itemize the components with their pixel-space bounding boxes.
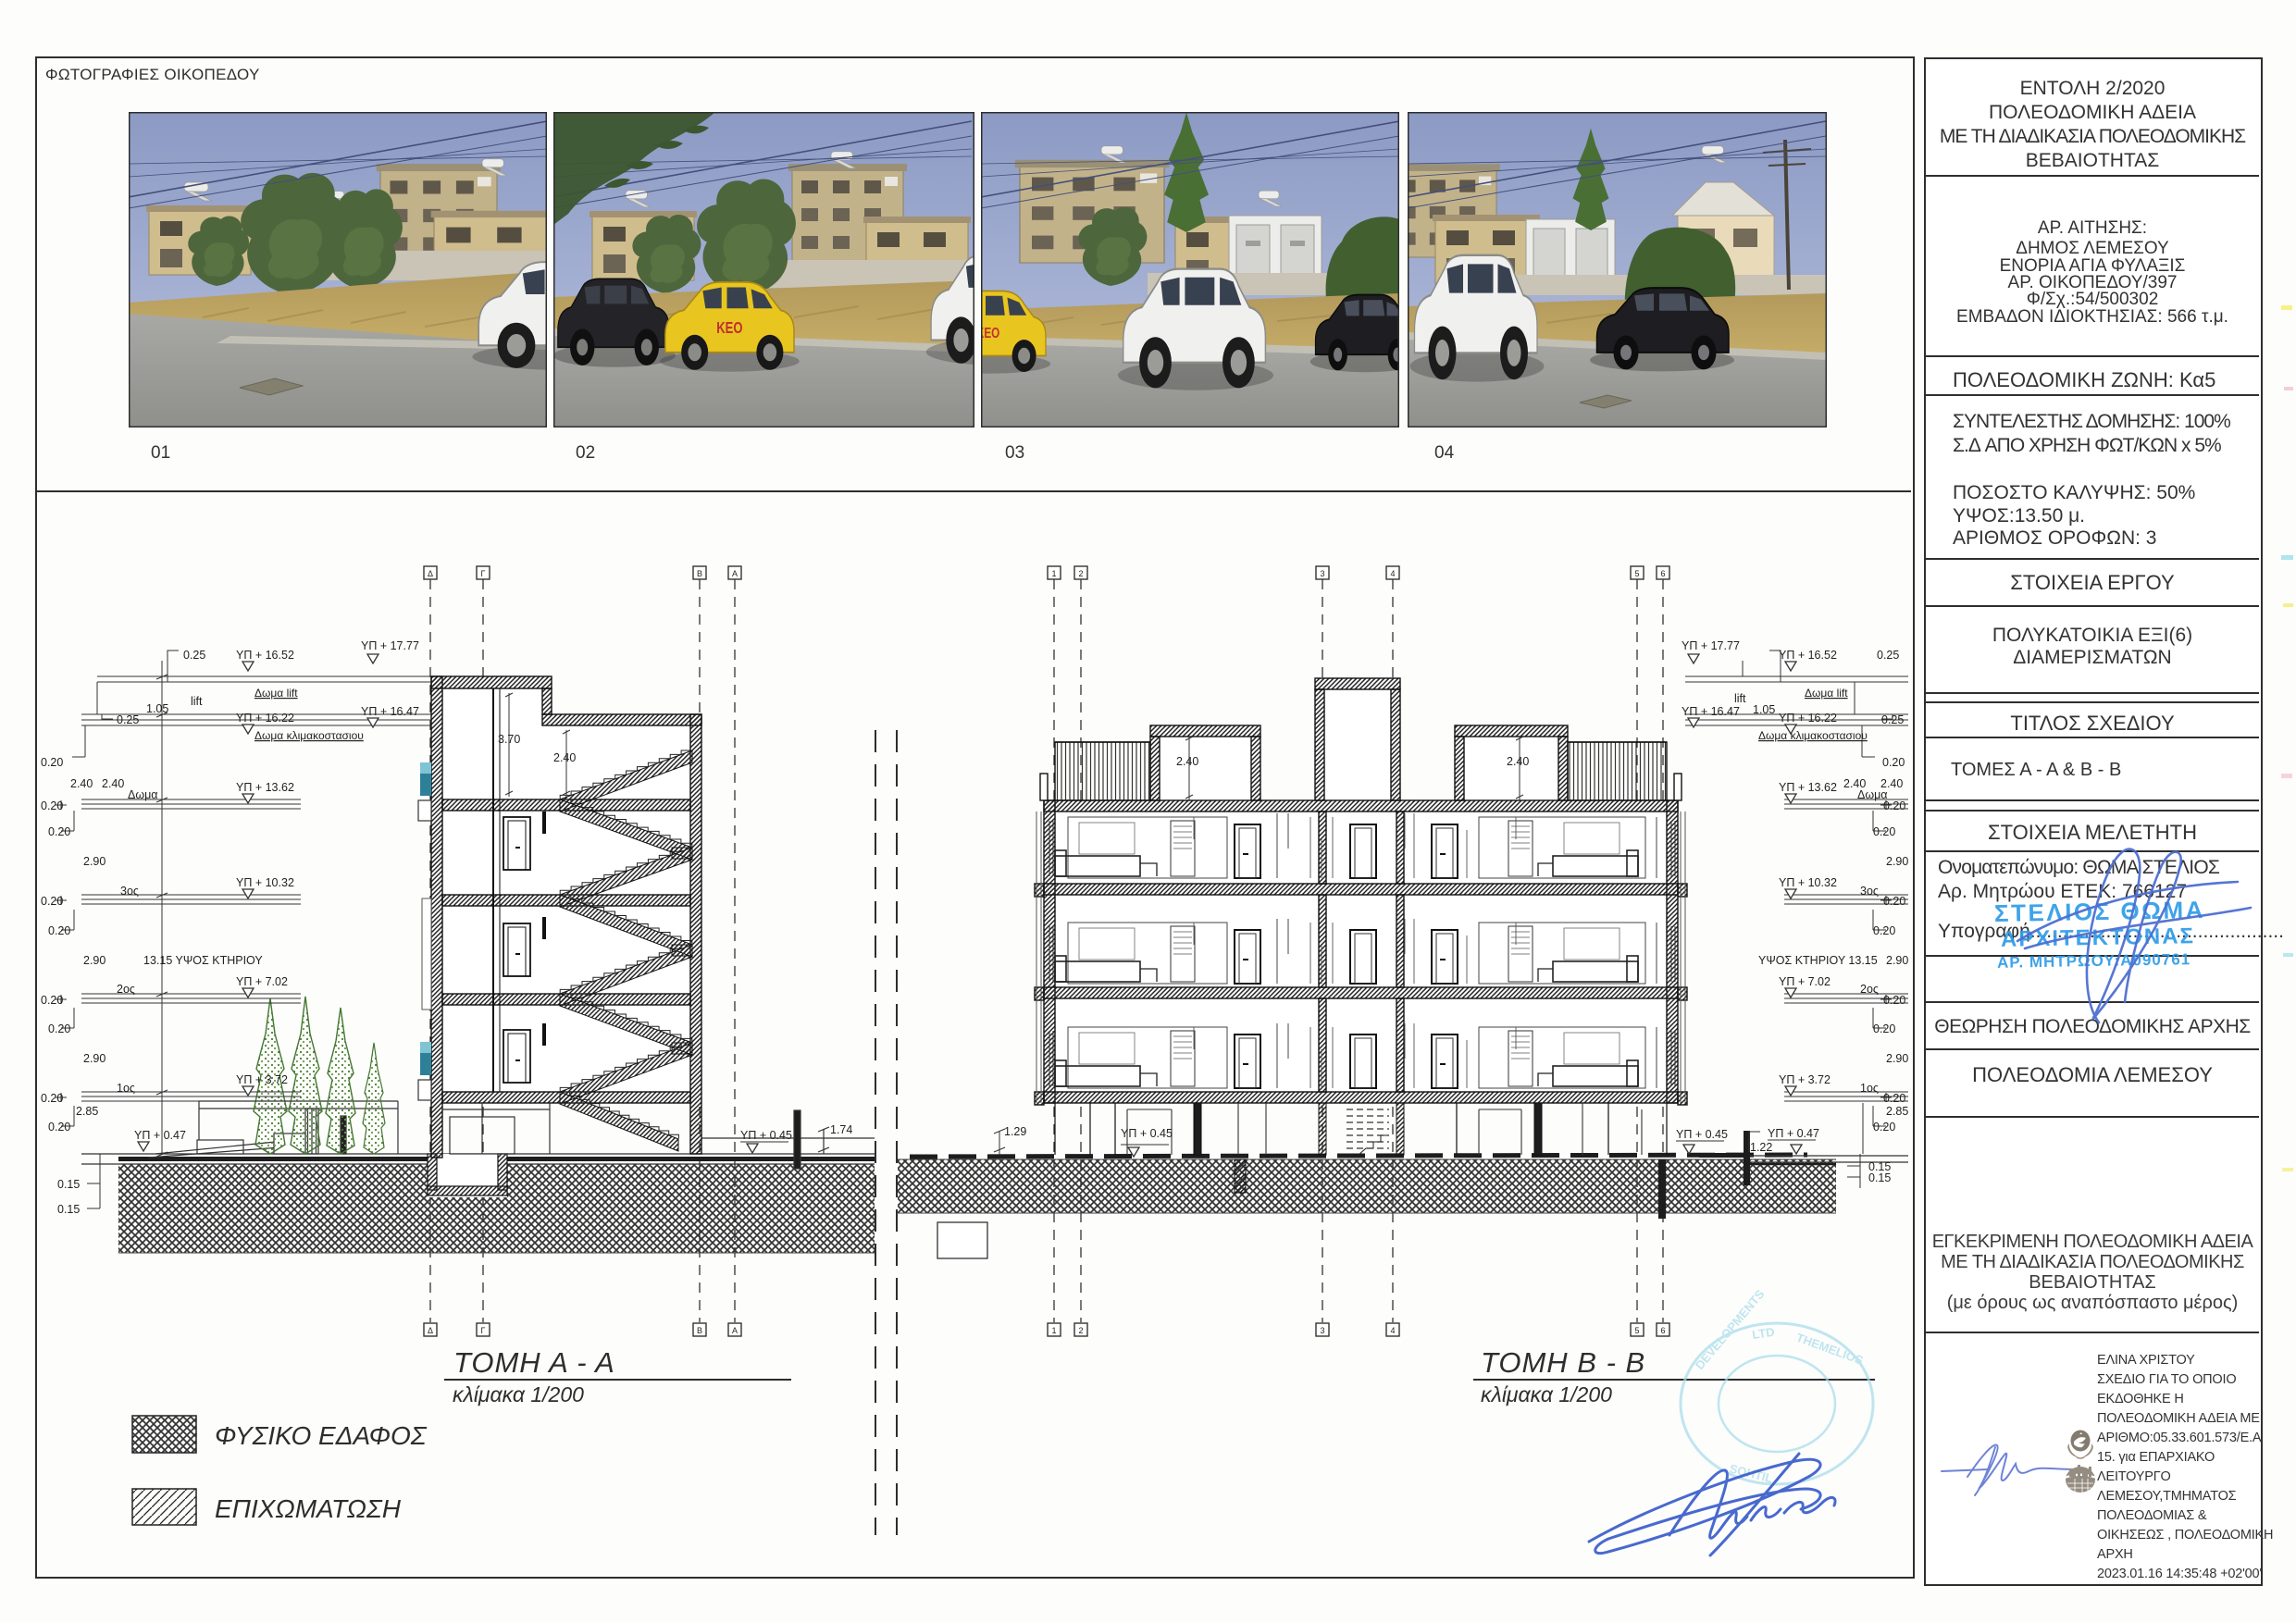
svg-text:ΥΠ + 0.45: ΥΠ + 0.45 bbox=[1121, 1127, 1173, 1140]
svg-text:κλίμακα 1/200: κλίμακα 1/200 bbox=[453, 1382, 584, 1406]
svg-text:ΕΠΙΧΩΜΑΤΩΣΗ: ΕΠΙΧΩΜΑΤΩΣΗ bbox=[215, 1494, 402, 1523]
svg-text:Δωμα: Δωμα bbox=[128, 788, 158, 801]
svg-text:0.20: 0.20 bbox=[1873, 1121, 1895, 1134]
svg-text:2: 2 bbox=[1078, 569, 1083, 578]
svg-text:2.40: 2.40 bbox=[1176, 755, 1198, 768]
svg-text:1.29: 1.29 bbox=[1004, 1125, 1026, 1138]
svg-text:2.90: 2.90 bbox=[83, 954, 105, 967]
svg-text:6: 6 bbox=[1660, 569, 1665, 578]
svg-text:5: 5 bbox=[1634, 569, 1639, 578]
svg-text:ΥΠ + 0.45: ΥΠ + 0.45 bbox=[1676, 1128, 1728, 1141]
svg-text:ΥΨΟΣ ΚΤΗΡΙΟΥ 13.15: ΥΨΟΣ ΚΤΗΡΙΟΥ 13.15 bbox=[1758, 954, 1878, 967]
svg-text:2ος: 2ος bbox=[1860, 983, 1879, 996]
svg-text:2.90: 2.90 bbox=[83, 1052, 105, 1065]
svg-text:Γ: Γ bbox=[481, 1326, 486, 1335]
svg-text:1: 1 bbox=[1051, 1326, 1056, 1335]
svg-text:Α: Α bbox=[732, 1326, 738, 1335]
svg-text:ΥΠ + 13.62: ΥΠ + 13.62 bbox=[236, 781, 294, 794]
svg-text:0.20: 0.20 bbox=[1883, 1092, 1905, 1105]
svg-text:ΥΠ + 16.52: ΥΠ + 16.52 bbox=[1779, 649, 1837, 662]
svg-text:ΥΠ + 0.47: ΥΠ + 0.47 bbox=[1768, 1127, 1819, 1140]
svg-text:2.40: 2.40 bbox=[553, 751, 576, 764]
svg-text:2.90: 2.90 bbox=[1886, 855, 1908, 868]
svg-text:3: 3 bbox=[1320, 1326, 1324, 1335]
svg-text:κλίμακα 1/200: κλίμακα 1/200 bbox=[1481, 1382, 1612, 1406]
svg-text:0.20: 0.20 bbox=[41, 799, 63, 812]
svg-text:3ος: 3ος bbox=[1860, 885, 1879, 898]
svg-text:2.90: 2.90 bbox=[1886, 954, 1908, 967]
svg-text:0.20: 0.20 bbox=[48, 825, 70, 838]
svg-text:ΥΠ + 17.77: ΥΠ + 17.77 bbox=[361, 639, 419, 652]
svg-text:3.70: 3.70 bbox=[498, 733, 520, 746]
svg-text:2.85: 2.85 bbox=[76, 1105, 98, 1118]
svg-text:ΤΟΜΗ Α - Α: ΤΟΜΗ Α - Α bbox=[453, 1346, 615, 1379]
svg-text:ΥΠ + 16.22: ΥΠ + 16.22 bbox=[1779, 712, 1837, 725]
svg-text:0.20: 0.20 bbox=[1873, 924, 1895, 937]
svg-text:Β: Β bbox=[697, 1326, 702, 1335]
svg-text:ΥΠ + 13.62: ΥΠ + 13.62 bbox=[1779, 781, 1837, 794]
svg-text:1.05: 1.05 bbox=[146, 702, 168, 715]
svg-text:ΥΠ + 16.47: ΥΠ + 16.47 bbox=[361, 705, 419, 718]
svg-text:Β: Β bbox=[697, 569, 702, 578]
svg-text:3ος: 3ος bbox=[120, 885, 139, 898]
svg-text:0.20: 0.20 bbox=[48, 924, 70, 937]
svg-text:ΥΠ + 0.45: ΥΠ + 0.45 bbox=[740, 1129, 792, 1142]
svg-text:ΥΠ + 7.02: ΥΠ + 7.02 bbox=[236, 975, 288, 988]
svg-text:0.20: 0.20 bbox=[41, 994, 63, 1007]
svg-text:2.40: 2.40 bbox=[1507, 755, 1529, 768]
svg-text:2.85: 2.85 bbox=[1886, 1105, 1908, 1118]
svg-text:0.15: 0.15 bbox=[57, 1178, 80, 1191]
svg-text:1ος: 1ος bbox=[117, 1082, 135, 1095]
svg-text:2.90: 2.90 bbox=[1886, 1052, 1908, 1065]
svg-text:ΤΟΜΗ Β - Β: ΤΟΜΗ Β - Β bbox=[1481, 1346, 1645, 1379]
svg-text:6: 6 bbox=[1660, 1326, 1665, 1335]
svg-text:13.15 ΥΨΟΣ ΚΤΗΡΙΟΥ: 13.15 ΥΨΟΣ ΚΤΗΡΙΟΥ bbox=[143, 954, 263, 967]
svg-text:0.20: 0.20 bbox=[41, 756, 63, 769]
svg-text:0.20: 0.20 bbox=[1883, 895, 1905, 908]
svg-text:1.74: 1.74 bbox=[830, 1123, 852, 1136]
svg-text:0.25: 0.25 bbox=[1877, 649, 1899, 662]
svg-text:lift: lift bbox=[1734, 692, 1746, 705]
svg-text:Α: Α bbox=[732, 569, 738, 578]
svg-text:1: 1 bbox=[1051, 569, 1056, 578]
svg-text:ΥΠ + 3.72: ΥΠ + 3.72 bbox=[236, 1073, 288, 1086]
svg-text:Δ: Δ bbox=[428, 569, 433, 578]
svg-text:0.20: 0.20 bbox=[1873, 825, 1895, 838]
svg-text:0.20: 0.20 bbox=[1883, 994, 1905, 1007]
svg-text:0.20: 0.20 bbox=[41, 895, 63, 908]
svg-text:3: 3 bbox=[1320, 569, 1324, 578]
svg-text:0.20: 0.20 bbox=[1873, 1022, 1895, 1035]
svg-text:Δωμα lift: Δωμα lift bbox=[254, 687, 298, 700]
svg-text:ΥΠ + 0.47: ΥΠ + 0.47 bbox=[134, 1129, 186, 1142]
svg-text:Δωμα κλιμακοστασιου: Δωμα κλιμακοστασιου bbox=[254, 729, 364, 742]
svg-text:0.25: 0.25 bbox=[1881, 713, 1904, 726]
svg-text:0.20: 0.20 bbox=[1883, 799, 1905, 812]
svg-text:4: 4 bbox=[1390, 1326, 1395, 1335]
svg-text:Δ: Δ bbox=[428, 1326, 433, 1335]
svg-text:2ος: 2ος bbox=[117, 983, 135, 996]
svg-text:2: 2 bbox=[1078, 1326, 1083, 1335]
svg-text:ΥΠ + 7.02: ΥΠ + 7.02 bbox=[1779, 975, 1831, 988]
svg-text:LTD: LTD bbox=[1751, 1325, 1775, 1342]
svg-text:ΦΥΣΙΚΟ ΕΔΑΦΟΣ: ΦΥΣΙΚΟ ΕΔΑΦΟΣ bbox=[215, 1421, 428, 1450]
svg-text:0.20: 0.20 bbox=[1882, 756, 1905, 769]
svg-text:2.40: 2.40 bbox=[102, 777, 124, 790]
svg-text:ΥΠ + 16.47: ΥΠ + 16.47 bbox=[1682, 705, 1740, 718]
svg-text:ΥΠ + 10.32: ΥΠ + 10.32 bbox=[236, 876, 294, 889]
svg-text:ΥΠ + 16.52: ΥΠ + 16.52 bbox=[236, 649, 294, 662]
svg-text:ΥΠ + 10.32: ΥΠ + 10.32 bbox=[1779, 876, 1837, 889]
svg-text:0.25: 0.25 bbox=[117, 713, 139, 726]
svg-text:0.25: 0.25 bbox=[183, 649, 205, 662]
svg-text:5: 5 bbox=[1634, 1326, 1639, 1335]
svg-text:ΥΠ + 17.77: ΥΠ + 17.77 bbox=[1682, 639, 1740, 652]
svg-text:1ος: 1ος bbox=[1860, 1082, 1879, 1095]
svg-text:0.20: 0.20 bbox=[48, 1022, 70, 1035]
svg-text:lift: lift bbox=[191, 695, 203, 708]
svg-text:Γ: Γ bbox=[481, 569, 486, 578]
svg-text:1.22: 1.22 bbox=[1750, 1141, 1772, 1154]
svg-text:0.15: 0.15 bbox=[1868, 1171, 1891, 1184]
svg-text:1.05: 1.05 bbox=[1753, 703, 1775, 716]
svg-text:2.90: 2.90 bbox=[83, 855, 105, 868]
svg-text:0.20: 0.20 bbox=[41, 1092, 63, 1105]
svg-text:2.40: 2.40 bbox=[70, 777, 93, 790]
svg-text:ΥΠ + 16.22: ΥΠ + 16.22 bbox=[236, 712, 294, 725]
svg-text:Δωμα lift: Δωμα lift bbox=[1805, 687, 1848, 700]
svg-text:0.20: 0.20 bbox=[48, 1121, 70, 1134]
svg-text:4: 4 bbox=[1390, 569, 1395, 578]
svg-text:0.15: 0.15 bbox=[57, 1203, 80, 1216]
svg-text:Δωμα κλιμακοστασιου: Δωμα κλιμακοστασιου bbox=[1758, 729, 1868, 742]
svg-text:ΥΠ + 3.72: ΥΠ + 3.72 bbox=[1779, 1073, 1831, 1086]
